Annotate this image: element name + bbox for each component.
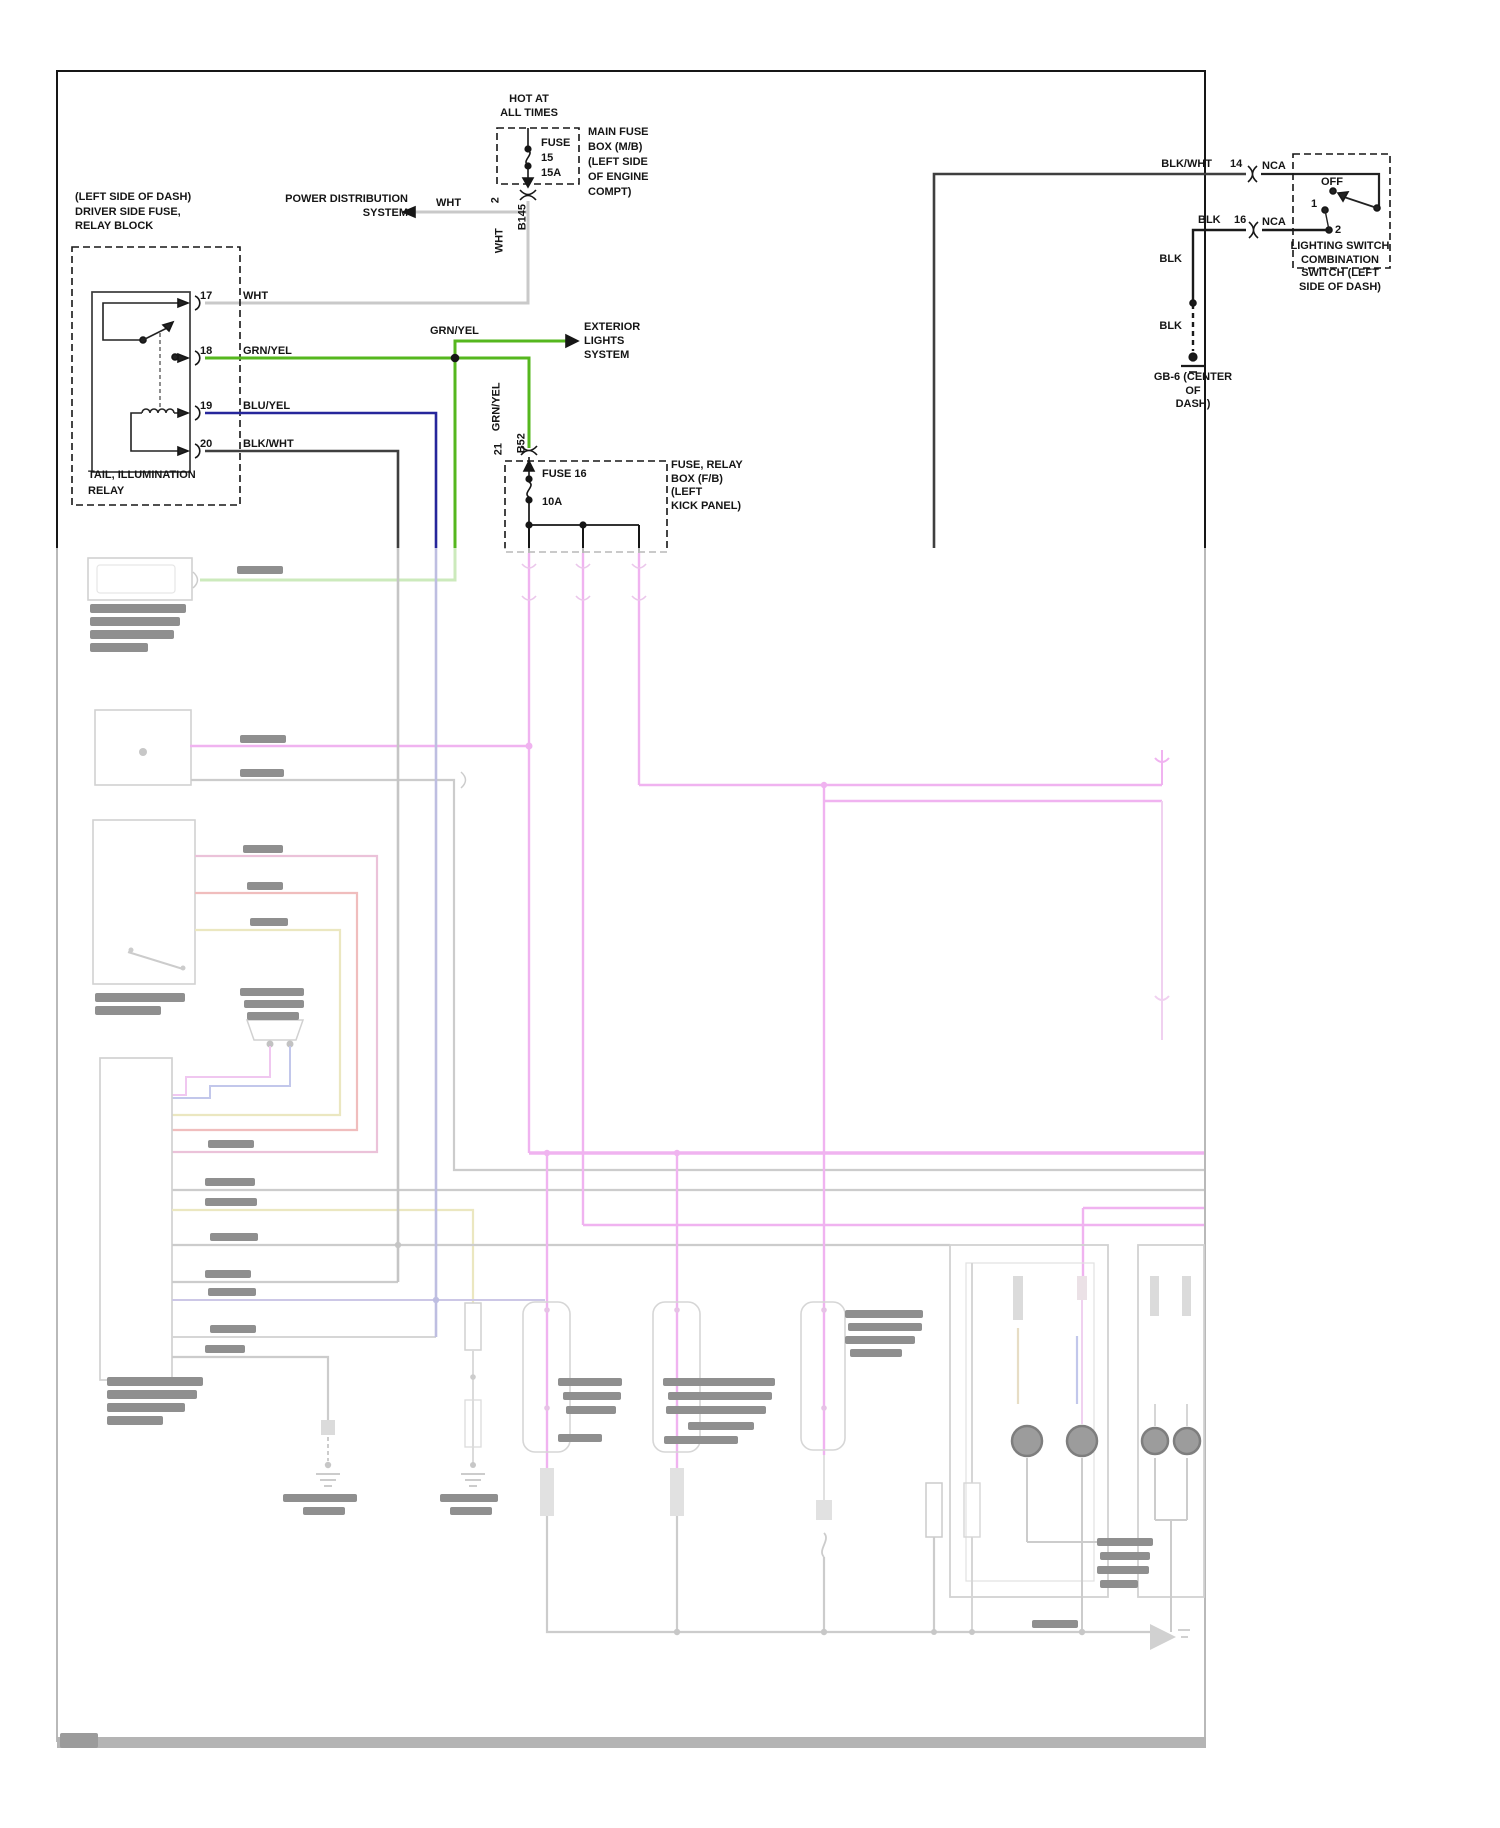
nca-in-label: NCA bbox=[1262, 159, 1286, 173]
pin-21-label: 21 bbox=[492, 443, 506, 455]
exterior-lights-label: EXTERIOR LIGHTS SYSTEM bbox=[584, 320, 640, 362]
power-distribution-label: POWER DISTRIBUTION SYSTEM bbox=[226, 192, 408, 220]
pos-2-label: 2 bbox=[1335, 223, 1341, 237]
blk-wht-switch-label: BLK/WHT bbox=[1128, 157, 1212, 171]
pos-1-label: 1 bbox=[1311, 197, 1317, 211]
pin-19-label: 19 bbox=[200, 399, 212, 413]
fuse-16-rating-label: 10A bbox=[542, 495, 562, 509]
pin-17-label: 17 bbox=[200, 289, 212, 303]
labels-layer: HOT AT ALL TIMES FUSE 15 15A MAIN FUSE B… bbox=[0, 0, 1500, 1828]
lighting-switch-name-label: LIGHTING SWITCH COMBINATION SWITCH (LEFT… bbox=[1270, 240, 1410, 294]
fuse-15-label: FUSE 15 15A bbox=[541, 136, 570, 181]
pin-18-label: 18 bbox=[200, 344, 212, 358]
gb6-ground-label: GB-6 (CENTER OF DASH) bbox=[1130, 371, 1256, 412]
wire-17-label: WHT bbox=[243, 289, 268, 303]
wht-left-label: WHT bbox=[436, 196, 461, 210]
pin-14-label: 14 bbox=[1230, 157, 1242, 171]
hot-at-label: HOT AT ALL TIMES bbox=[484, 92, 574, 121]
nca-out-label: NCA bbox=[1262, 215, 1286, 229]
pin-16-label: 16 bbox=[1234, 213, 1246, 227]
connector-b145-label: B145 bbox=[516, 204, 530, 230]
wire-20-label: BLK/WHT bbox=[243, 437, 294, 451]
pin-20-label: 20 bbox=[200, 437, 212, 451]
off-label: OFF bbox=[1321, 175, 1343, 189]
fuse-relay-box-label: FUSE, RELAY BOX (F/B) (LEFT KICK PANEL) bbox=[671, 459, 743, 513]
main-fuse-box-label: MAIN FUSE BOX (M/B) (LEFT SIDE OF ENGINE… bbox=[588, 125, 649, 200]
tail-illumination-relay-label: TAIL, ILLUMINATION RELAY bbox=[88, 467, 196, 499]
wht-vertical-label: WHT bbox=[493, 228, 507, 253]
fuse-16-label: FUSE 16 bbox=[542, 467, 587, 481]
grn-yel-vertical-label: GRN/YEL bbox=[490, 382, 504, 431]
blk-ground-label-1: BLK bbox=[1148, 252, 1182, 266]
wiring-diagram-page: HOT AT ALL TIMES FUSE 15 15A MAIN FUSE B… bbox=[0, 0, 1500, 1828]
wire-19-label: BLU/YEL bbox=[243, 399, 290, 413]
blk-ground-label-2: BLK bbox=[1148, 319, 1182, 333]
relay-location-label: (LEFT SIDE OF DASH) DRIVER SIDE FUSE, RE… bbox=[75, 190, 191, 234]
grn-yel-horizontal-label: GRN/YEL bbox=[430, 324, 479, 338]
pin-2-label: 2 bbox=[489, 197, 503, 203]
blk-switch-label: BLK bbox=[1198, 213, 1221, 227]
wire-18-label: GRN/YEL bbox=[243, 344, 292, 358]
connector-b52-label: B52 bbox=[515, 433, 529, 453]
